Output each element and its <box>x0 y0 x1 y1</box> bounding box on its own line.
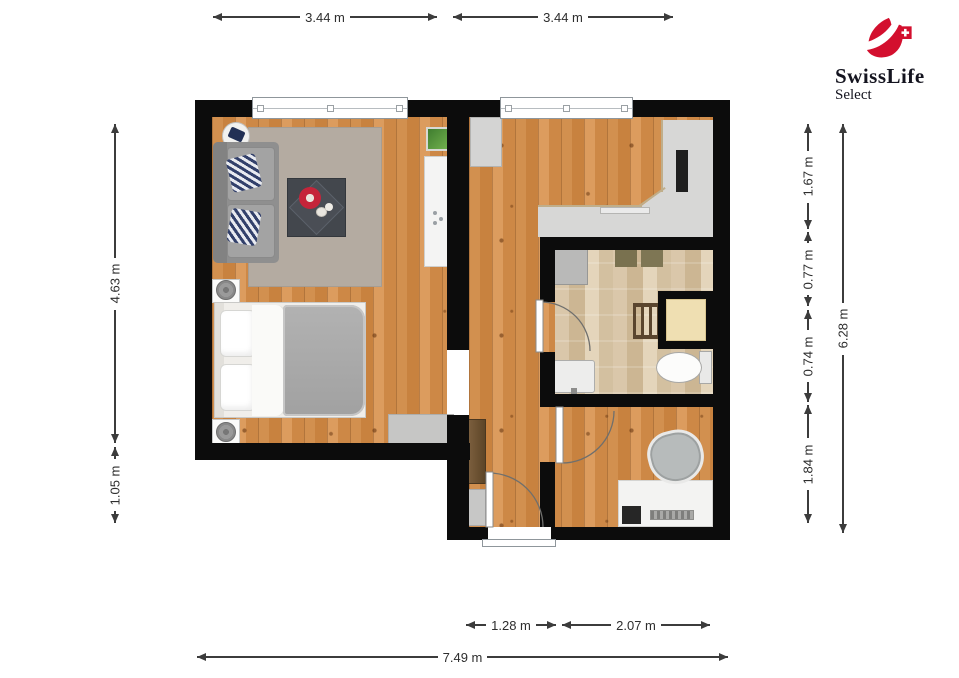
dim-right-segment-4: 1.84 m <box>800 405 816 523</box>
dim-label: 1.28 m <box>486 618 536 633</box>
office-door-arc <box>562 411 614 463</box>
dim-label: 1.84 m <box>801 444 816 484</box>
bathroom-door-leaf <box>536 300 543 352</box>
brand-name: SwissLife <box>835 64 943 89</box>
dim-label: 1.67 m <box>801 157 816 197</box>
dim-top-right: 3.44 m <box>453 10 673 24</box>
dim-left-main: 4.63 m <box>107 124 123 443</box>
swisslife-logo-icon <box>861 16 915 62</box>
dim-bottom-2: 2.07 m <box>562 618 710 632</box>
dim-right-total: 6.28 m <box>835 124 851 533</box>
dim-label: 3.44 m <box>300 10 350 25</box>
dim-label: 6.28 m <box>836 309 851 349</box>
dim-right-segment-3: 0.74 m <box>800 310 816 402</box>
dim-label: 2.07 m <box>611 618 661 633</box>
brand-logo: SwissLife Select <box>835 16 943 104</box>
floorplan-canvas: 3.44 m 3.44 m 4.63 m 1.05 m 1.67 m 0.77 … <box>0 0 959 678</box>
entrance-door-arc <box>489 473 543 527</box>
dim-bottom-total: 7.49 m <box>197 650 728 664</box>
brand-subtitle: Select <box>835 87 943 104</box>
office-door-leaf <box>556 407 563 463</box>
dim-label: 7.49 m <box>438 650 488 665</box>
dim-label: 4.63 m <box>108 264 123 304</box>
dim-right-segment-2: 0.77 m <box>800 232 816 306</box>
dim-top-left: 3.44 m <box>213 10 437 24</box>
dim-bottom-1: 1.28 m <box>466 618 556 632</box>
dim-right-segment-1: 1.67 m <box>800 124 816 229</box>
dim-label: 0.77 m <box>801 249 816 289</box>
dim-left-lower: 1.05 m <box>107 447 123 523</box>
dim-label: 3.44 m <box>538 10 588 25</box>
bathroom-door-arc <box>541 302 590 351</box>
dim-label: 0.74 m <box>801 336 816 376</box>
dim-label: 1.05 m <box>108 465 123 505</box>
entrance-door-leaf <box>486 472 493 527</box>
